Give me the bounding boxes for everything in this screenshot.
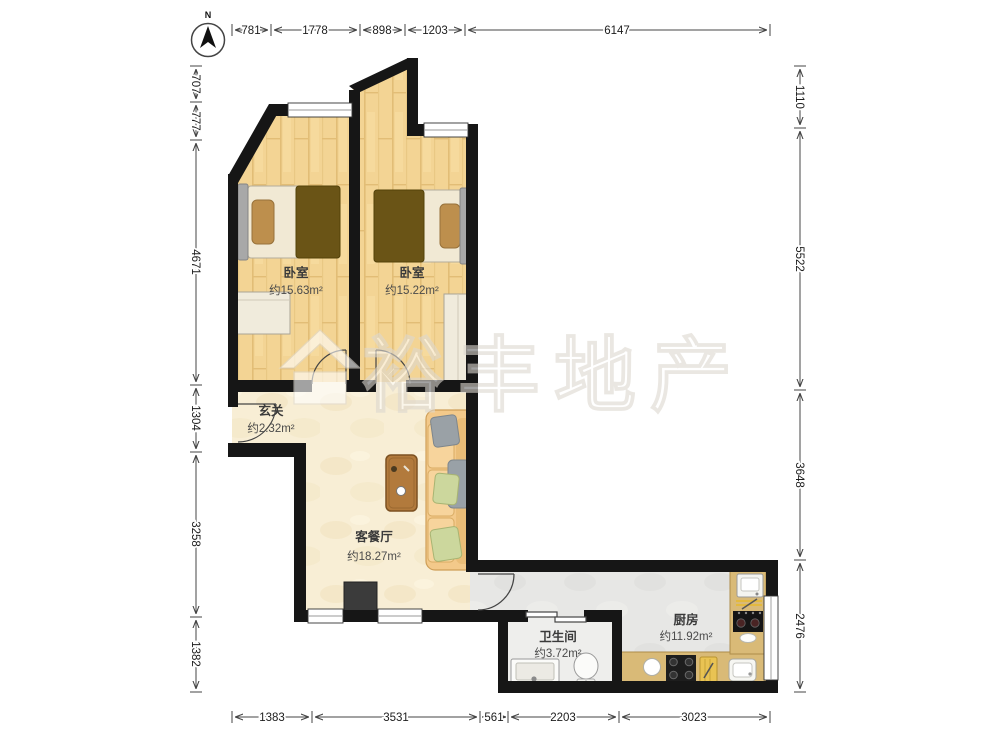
kitchen-bowl bbox=[644, 659, 661, 676]
bedroom-right-area: 约15.22m² bbox=[385, 283, 439, 297]
window-living-left bbox=[308, 609, 343, 623]
bedroom-left-area: 约15.63m² bbox=[269, 283, 323, 297]
tv-stand bbox=[344, 582, 377, 612]
kitchen-name: 厨房 bbox=[673, 612, 698, 627]
kitchen-sink bbox=[729, 659, 756, 681]
window-bedroom-left bbox=[288, 103, 352, 117]
dim-bottom-0: 1383 bbox=[236, 712, 308, 724]
plate bbox=[740, 634, 756, 643]
svg-text:781: 781 bbox=[241, 25, 260, 37]
dim-left-5: 1382 bbox=[189, 621, 201, 688]
living-name: 客餐厅 bbox=[354, 529, 393, 544]
dim-top-4: 6147 bbox=[469, 25, 766, 37]
entry-area: 约2.32m² bbox=[247, 421, 294, 435]
dim-left-2: 4671 bbox=[189, 144, 201, 381]
svg-text:3258: 3258 bbox=[189, 521, 201, 547]
dim-left-0: 707 bbox=[189, 70, 201, 98]
bathroom-area: 约3.72m² bbox=[534, 646, 581, 660]
dim-bottom-4: 3023 bbox=[623, 712, 766, 724]
floorplan-page: 裕丰地产 卧室 约15.63m² 卧室 约15.22m² 玄关 约2.32m² … bbox=[0, 0, 1000, 750]
dim-bottom-3: 2203 bbox=[512, 712, 615, 724]
svg-text:561: 561 bbox=[484, 712, 503, 724]
svg-text:2203: 2203 bbox=[550, 712, 576, 724]
dim-top-3: 1203 bbox=[409, 25, 461, 37]
svg-text:898: 898 bbox=[372, 25, 391, 37]
cooktop-grill bbox=[733, 611, 763, 632]
entry-name: 玄关 bbox=[258, 403, 284, 418]
dim-bottom-2: 561 bbox=[483, 712, 505, 724]
svg-text:777: 777 bbox=[189, 111, 201, 130]
window-living-right bbox=[378, 609, 422, 623]
dimensions-top: 781 1778 898 1203 6147 bbox=[232, 24, 770, 37]
svg-text:3531: 3531 bbox=[383, 712, 409, 724]
svg-text:6147: 6147 bbox=[604, 25, 630, 37]
coffee-table bbox=[386, 455, 417, 511]
bed-left bbox=[238, 184, 340, 260]
dim-left-1: 777 bbox=[189, 106, 201, 136]
dim-right-0: 1110 bbox=[793, 70, 805, 124]
svg-text:2476: 2476 bbox=[793, 613, 805, 639]
kitchen-area: 约11.92m² bbox=[660, 629, 713, 643]
dimensions-bottom: 1383 3531 561 2203 3023 bbox=[232, 711, 770, 724]
svg-text:1304: 1304 bbox=[189, 405, 201, 431]
bathroom-name: 卫生间 bbox=[539, 629, 577, 644]
dim-right-2: 3648 bbox=[793, 394, 805, 556]
watermark-text: 裕丰地产 bbox=[362, 331, 746, 422]
dim-top-1: 1778 bbox=[275, 25, 356, 37]
window-bedroom-right bbox=[424, 123, 468, 137]
dim-left-3: 1304 bbox=[189, 389, 201, 448]
dim-top-0: 781 bbox=[236, 25, 267, 37]
dim-right-1: 5522 bbox=[793, 132, 805, 386]
dimensions-left: 707 777 4671 1304 3258 1382 bbox=[189, 66, 202, 692]
dim-bottom-1: 3531 bbox=[316, 712, 476, 724]
svg-text:1203: 1203 bbox=[422, 25, 448, 37]
north-compass: N bbox=[192, 10, 225, 57]
dim-top-2: 898 bbox=[364, 25, 401, 37]
bed-right bbox=[374, 188, 470, 264]
compass-n-label: N bbox=[205, 10, 212, 20]
cutting-board bbox=[700, 657, 717, 683]
bedroom-left-name: 卧室 bbox=[283, 265, 309, 280]
svg-text:1778: 1778 bbox=[302, 25, 328, 37]
svg-text:3023: 3023 bbox=[681, 712, 707, 724]
dim-right-3: 2476 bbox=[793, 564, 805, 688]
svg-text:1383: 1383 bbox=[259, 712, 285, 724]
bedroom-right-name: 卧室 bbox=[399, 265, 425, 280]
svg-text:4671: 4671 bbox=[189, 249, 201, 275]
svg-text:3648: 3648 bbox=[793, 462, 805, 488]
dim-left-4: 3258 bbox=[189, 456, 201, 613]
sofa-pillow-green-mid bbox=[432, 473, 459, 505]
window-kitchen bbox=[764, 596, 778, 680]
svg-text:707: 707 bbox=[189, 74, 201, 93]
living-area: 约18.27m² bbox=[347, 549, 401, 563]
stove bbox=[666, 655, 696, 682]
svg-text:5522: 5522 bbox=[793, 246, 805, 272]
svg-text:1110: 1110 bbox=[793, 85, 805, 109]
svg-text:1382: 1382 bbox=[189, 641, 201, 667]
sofa-pillow-green-bottom bbox=[430, 526, 463, 562]
floorplan-canvas: 裕丰地产 卧室 约15.63m² 卧室 约15.22m² 玄关 约2.32m² … bbox=[0, 0, 1000, 750]
dimensions-right: 1110 5522 3648 2476 bbox=[793, 66, 806, 692]
wardrobe-left bbox=[236, 292, 290, 334]
rice-cooker bbox=[737, 574, 763, 597]
